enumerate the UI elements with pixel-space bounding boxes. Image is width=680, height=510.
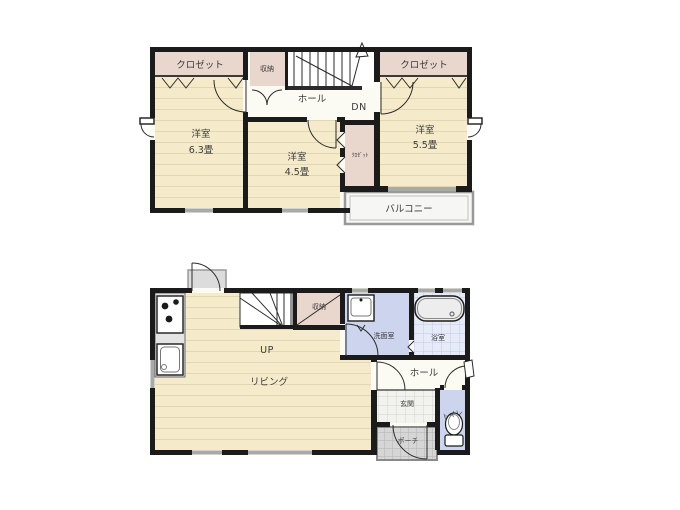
label-stairs-dn: DN bbox=[351, 102, 366, 113]
window-1f-north-3 bbox=[443, 289, 462, 293]
window-1f-north-1 bbox=[352, 289, 368, 293]
label-closet-left-2f: クロゼット bbox=[176, 59, 224, 71]
toilet-door-leaf bbox=[464, 360, 474, 378]
label-bathroom: 浴室 bbox=[431, 333, 445, 342]
staircase-1f bbox=[240, 293, 295, 329]
window-1f-south-2 bbox=[248, 451, 312, 455]
balcony-sliding-door bbox=[388, 187, 456, 191]
window-1f-north-2 bbox=[418, 289, 435, 293]
label-hall-2f: ホール bbox=[298, 94, 327, 105]
label-room63-size: 6.3畳 bbox=[189, 145, 214, 156]
kitchen-counter bbox=[155, 293, 185, 377]
floor1-plan: 収納 UP リビング 洗面室 浴室 ホール 玄関 ポーチ トイレ bbox=[150, 263, 474, 460]
label-room55-name: 洋室 bbox=[415, 124, 434, 136]
floorplan-image: クロゼット 収納 ホール DN クロゼット 洋室 6.3畳 洋室 4.5畳 ｸﾛ… bbox=[0, 0, 680, 510]
window-1f-west bbox=[151, 360, 155, 388]
window-2f-south-1 bbox=[185, 209, 213, 213]
floorplan-svg: クロゼット 収納 ホール DN クロゼット 洋室 6.3畳 洋室 4.5畳 ｸﾛ… bbox=[0, 0, 680, 510]
kitchen-sink bbox=[157, 344, 183, 375]
label-entrance: 玄関 bbox=[400, 399, 414, 408]
label-closet-right-2f: クロゼット bbox=[400, 59, 448, 71]
label-storage-2f: 収納 bbox=[260, 64, 274, 73]
floor2-plan: クロゼット 収納 ホール DN クロゼット 洋室 6.3畳 洋室 4.5畳 ｸﾛ… bbox=[140, 43, 482, 224]
label-stairs-up: UP bbox=[260, 345, 274, 356]
label-storage-1f: 収納 bbox=[312, 302, 326, 311]
bathtub bbox=[415, 296, 464, 321]
back-door-step bbox=[188, 270, 226, 289]
label-balcony: バルコニー bbox=[385, 204, 432, 215]
label-porch: ポーチ bbox=[398, 437, 419, 445]
label-room55-size: 5.5畳 bbox=[413, 140, 438, 151]
label-hall-1f: ホール bbox=[410, 368, 439, 379]
label-room63-name: 洋室 bbox=[191, 128, 210, 140]
label-washroom: 洗面室 bbox=[374, 331, 395, 340]
window-2f-south-2 bbox=[282, 209, 308, 213]
window-1f-south-1 bbox=[192, 451, 222, 455]
living-floor-c bbox=[340, 360, 371, 450]
stove bbox=[157, 296, 183, 333]
label-closet-mid-2f: ｸﾛｾﾞｯﾄ bbox=[352, 152, 369, 159]
label-living: リビング bbox=[250, 376, 289, 388]
living-floor-b bbox=[240, 329, 340, 450]
room-2f-youshitsu-63 bbox=[155, 75, 243, 208]
label-room45-name: 洋室 bbox=[287, 151, 306, 163]
room-2f-youshitsu-45 bbox=[248, 120, 340, 208]
label-room45-size: 4.5畳 bbox=[285, 167, 310, 178]
